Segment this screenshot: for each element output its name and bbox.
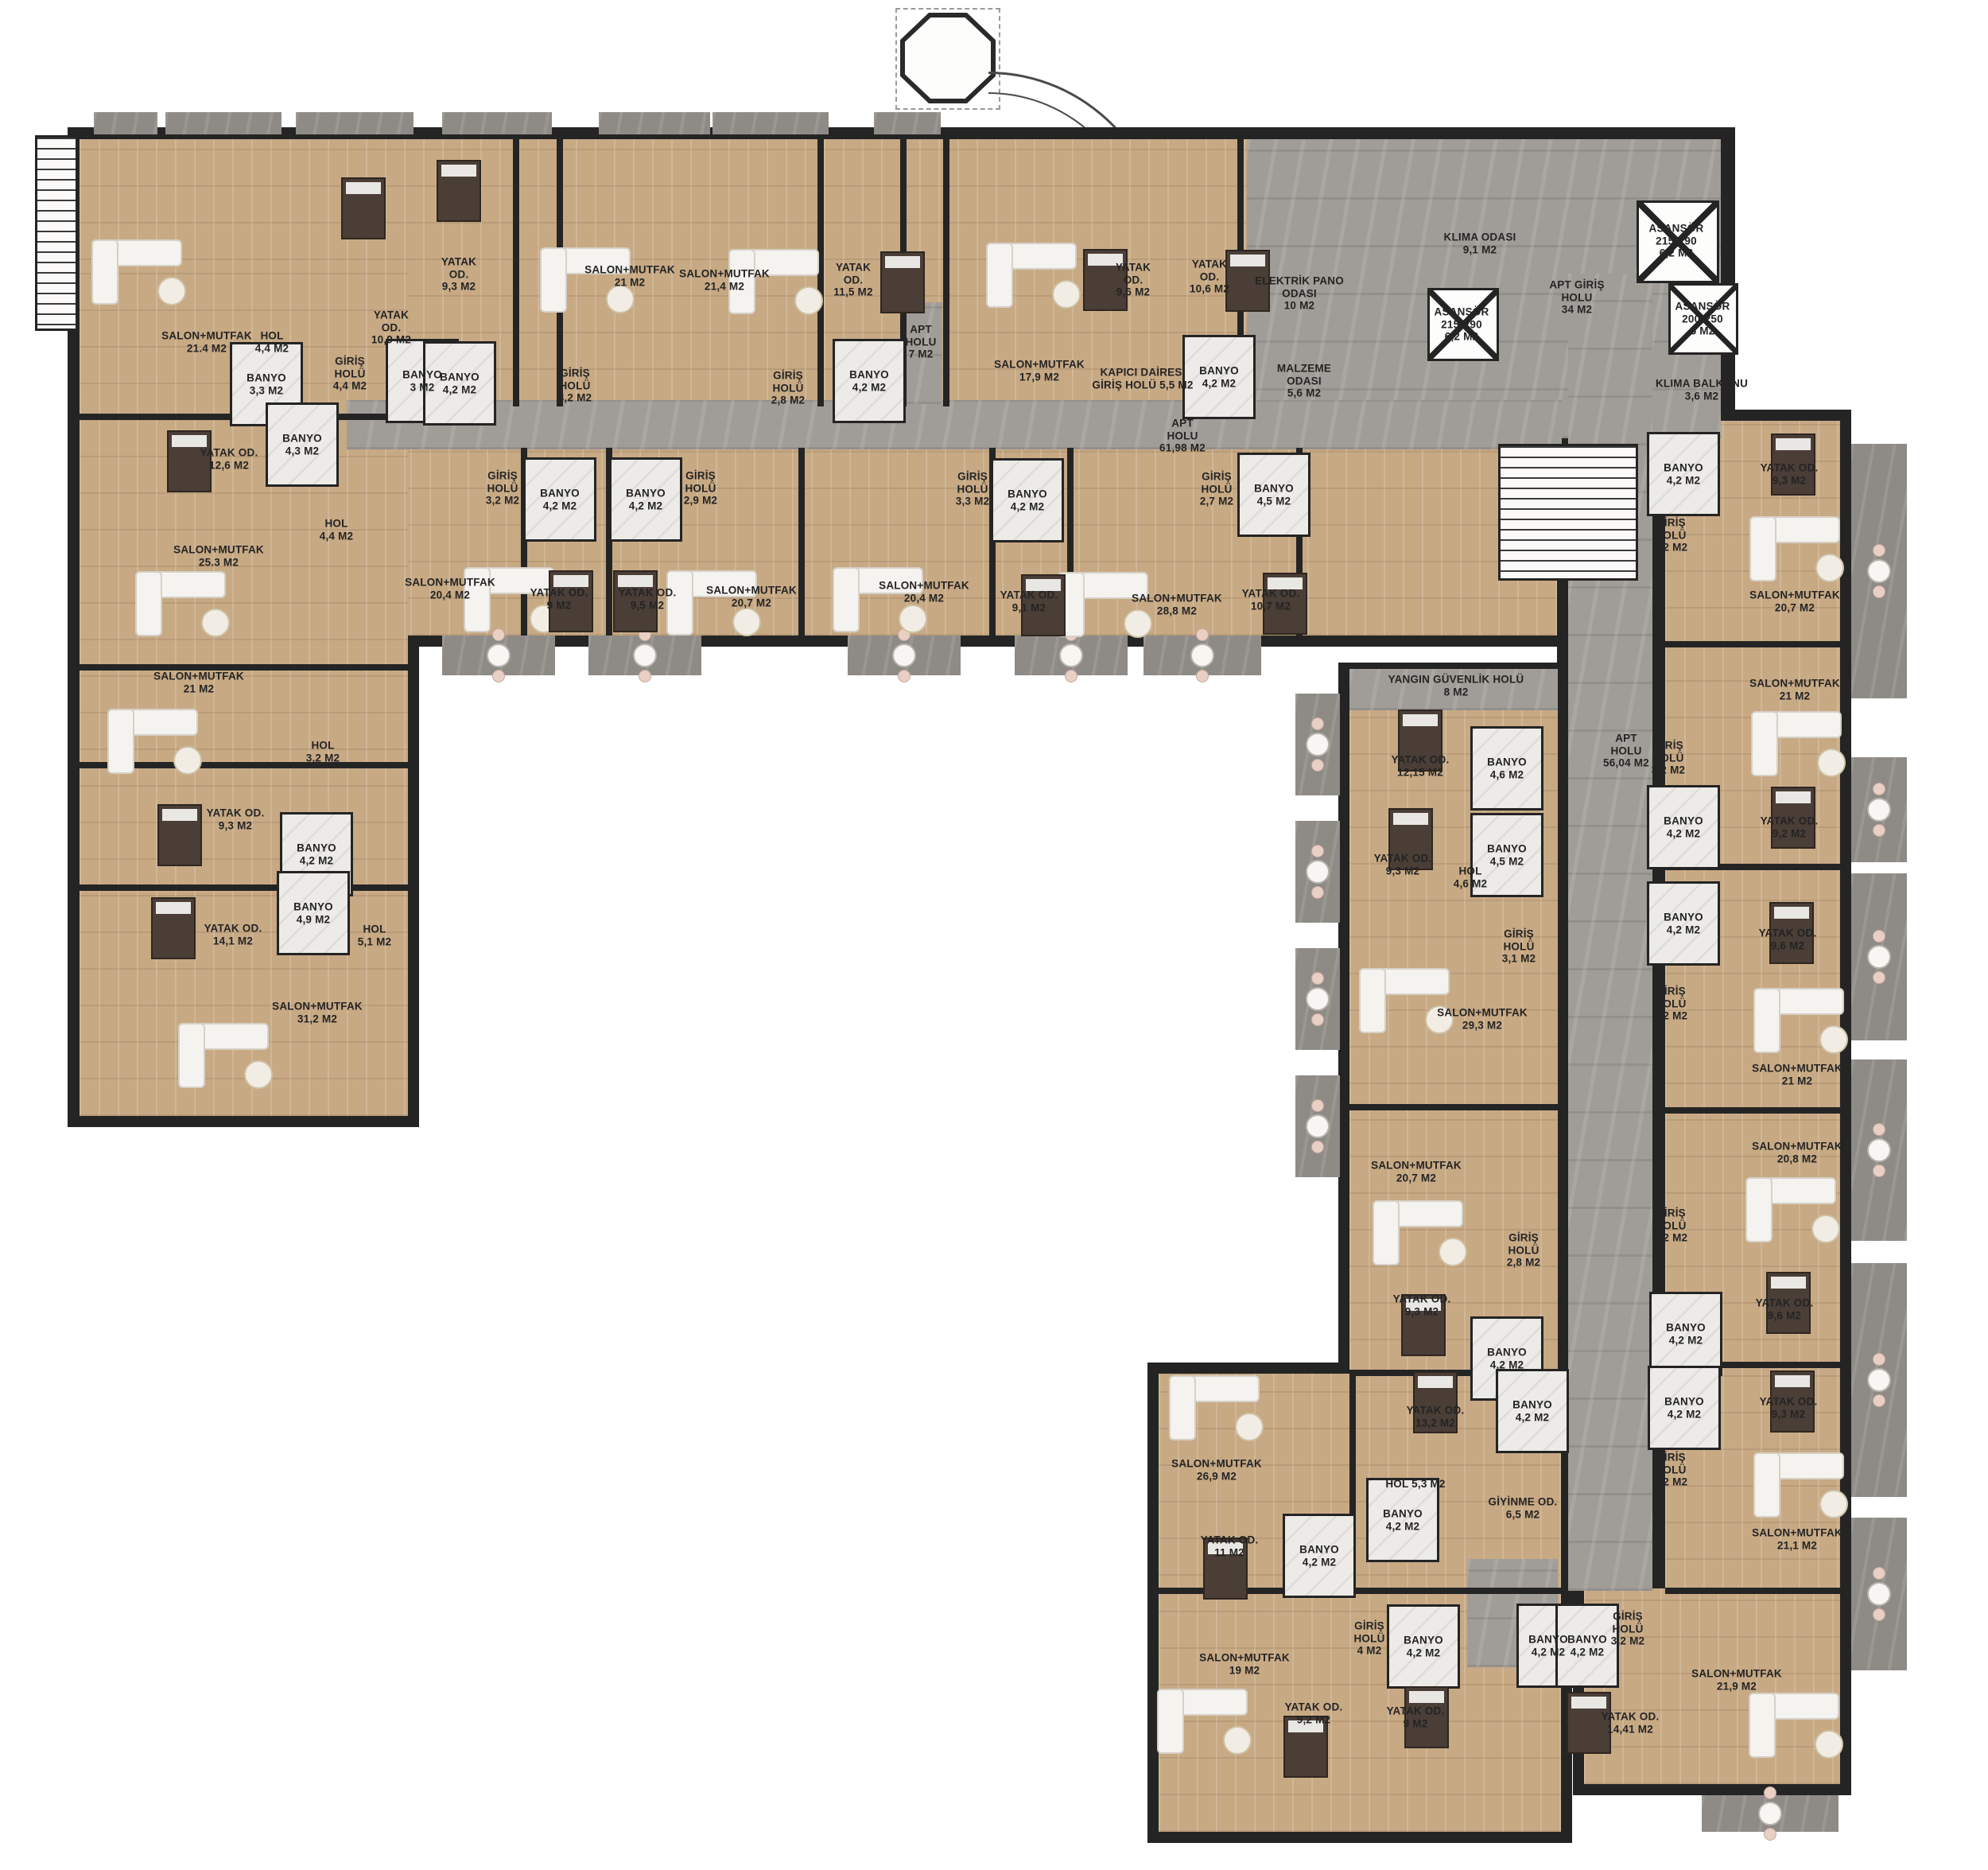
balcony-chair [1311, 717, 1324, 730]
room-label: GİRİŞ HOLÜ 3,2 M2 [1652, 740, 1685, 777]
balcony-chair [1873, 1567, 1885, 1580]
balcony-chair [1873, 930, 1885, 943]
coffee-table [899, 605, 927, 633]
room-label: GİRİŞ HOLÜ 3,2 M2 [1611, 1611, 1644, 1648]
room-label: ASANSÖR 215*290 6,2 M2 [1649, 223, 1704, 260]
room-label: GİRİŞ HOLÜ 3,2 M2 [558, 367, 592, 405]
room-label: YATAK OD. 10,9 M2 [371, 309, 411, 347]
room-label: YATAK OD. 9,2 M2 [1285, 1701, 1343, 1725]
room-label: KLIMA BALKONU 3,6 M2 [1656, 377, 1748, 402]
balcony-table [1867, 1368, 1891, 1392]
coffee-table [606, 285, 635, 313]
room-label: SALON+MUTFAK 31,2 M2 [272, 1000, 363, 1024]
room-label: APT GİRİŞ HOLU 34 M2 [1549, 279, 1604, 317]
room-label: HOL 4,6 M2 [1454, 865, 1487, 889]
room-label: YATAK OD. 9,3 M2 [1760, 1395, 1818, 1420]
balcony-chair [1873, 971, 1885, 984]
wall-segment [513, 139, 519, 406]
room-label: SALON+MUTFAK 29,3 M2 [1437, 1006, 1528, 1031]
room-label: YATAK OD. 9,3 M2 [207, 807, 265, 831]
room-label: BANYO 3 M2 [402, 368, 442, 393]
room-label: BANYO 4,9 M2 [293, 900, 333, 925]
room-label: SALON+MUTFAK 20,4 M2 [405, 576, 495, 601]
room-label: SALON+MUTFAK 21 M2 [584, 263, 675, 288]
coffee-table [244, 1060, 273, 1089]
coffee-table [1235, 1413, 1264, 1441]
room-label: YATAK OD. 11 M2 [1201, 1534, 1259, 1558]
room-label: MALZEME ODASI 5,6 M2 [1277, 363, 1331, 400]
balcony-chair [1873, 1123, 1885, 1136]
room-label: YATAK OD. 9 M2 [530, 586, 588, 611]
room-label: BANYO 4,2 M2 [540, 487, 580, 511]
room-label: HOL 4,4 M2 [255, 329, 289, 354]
room-label: BANYO 4,2 M2 [1008, 488, 1047, 512]
room-label: GİRİŞ HOLÜ 3,2 M2 [486, 470, 519, 507]
balcony-chair [492, 628, 505, 641]
room-label: SALON+MUTFAK 21,4 M2 [679, 267, 770, 292]
room-label: APT HOLU 7 M2 [905, 324, 936, 361]
balcony-table [1867, 559, 1891, 583]
balcony-chair [1873, 783, 1885, 795]
coffee-table [1052, 280, 1081, 309]
room-label: SALON+MUTFAK 28,8 M2 [1132, 592, 1222, 616]
balcony-chair [1311, 972, 1324, 985]
staircase [35, 135, 78, 331]
room-label: GİRİŞ HOLÜ 2,8 M2 [1507, 1232, 1540, 1269]
bed-furniture [151, 897, 196, 959]
balcony-table [1190, 643, 1214, 667]
room-label: BANYO 4,2 M2 [1664, 814, 1703, 839]
room-label: SALON+MUTFAK 19 M2 [1199, 1651, 1290, 1676]
room-label: BANYO 4,2 M2 [1666, 1321, 1706, 1346]
room-label: BANYO 4,2 M2 [1664, 911, 1703, 935]
room-label: BANYO 4,5 M2 [1254, 482, 1294, 507]
room-label: BANYO 4,6 M2 [1487, 756, 1527, 780]
room-label: SALON+MUTFAK 20,4 M2 [879, 579, 969, 604]
room-label: BANYO 4,2 M2 [1664, 461, 1703, 486]
room-label: HOL 3,2 M2 [306, 739, 340, 764]
room-label: ELEKTRİK PANO ODASI 10 M2 [1255, 275, 1344, 313]
room-label: HOL 4,4 M2 [320, 517, 353, 542]
room-label: YATAK OD. 9,6 M2 [1759, 927, 1817, 951]
balcony-table [1059, 643, 1083, 667]
balcony-chair [1311, 1099, 1324, 1112]
balcony [165, 112, 282, 134]
balcony [94, 112, 157, 134]
balcony-chair [492, 670, 505, 682]
room-label: YATAK OD. 9,5 M2 [619, 586, 677, 611]
room-label: ASANSÖR 215*290 6,2 M2 [1435, 306, 1489, 344]
room-label: GİRİŞ HOLÜ 3,2 M2 [1654, 517, 1687, 554]
room-label: SALON+MUTFAK 20,8 M2 [1752, 1140, 1842, 1164]
balcony-chair [1311, 845, 1324, 857]
wall-segment [80, 884, 408, 891]
room-label: SALON+MUTFAK 17,9 M2 [994, 358, 1085, 383]
room-label: YATAK OD. 9,6 M2 [1116, 262, 1151, 299]
room-label: BANYO 4,2 M2 [440, 371, 480, 395]
balcony-chair [1311, 886, 1324, 899]
coffee-table [1815, 554, 1844, 582]
room-label: YATAK OD. 9,3 M2 [1761, 461, 1819, 486]
balcony-chair [1065, 670, 1077, 682]
room-label: APT HOLU 56,04 M2 [1603, 733, 1649, 770]
balcony-table [1306, 1114, 1330, 1138]
room-label: GİRİŞ HOLÜ 3,1 M2 [1502, 928, 1536, 966]
balcony-chair [1873, 585, 1885, 598]
wall-segment [1665, 1107, 1840, 1114]
balcony-table [1867, 1582, 1891, 1606]
room-label: HOL 5,3 M2 [1385, 1478, 1445, 1491]
room-label: SALON+MUTFAK 21,9 M2 [1691, 1667, 1782, 1692]
room-label: BANYO 4,2 M2 [1512, 1398, 1552, 1423]
room-label: KAPICI DAİRESİ GİRİŞ HOLÜ 5,5 M2 [1092, 366, 1193, 391]
balcony-table [1306, 987, 1330, 1011]
room-label: YATAK OD. 10,6 M2 [1190, 259, 1229, 296]
room-label: GİRİŞ HOLÜ 2,7 M2 [1200, 471, 1233, 508]
room-label: YATAK OD. 12,6 M2 [200, 446, 258, 471]
room-label: SALON+MUTFAK 26,9 M2 [1171, 1457, 1262, 1482]
room-label: KLIMA ODASI 9,1 M2 [1444, 231, 1516, 255]
wall-segment [943, 139, 949, 406]
room-label: YATAK OD. 9,3 M2 [1393, 1293, 1451, 1317]
room-label: GİRİŞ HOLÜ 4 M2 [1353, 1620, 1384, 1658]
balcony-chair [1311, 1013, 1324, 1026]
balcony-chair [1873, 1394, 1885, 1407]
balcony-chair [1196, 670, 1209, 682]
room-label: BANYO 4,2 M2 [1664, 1395, 1704, 1420]
room-label: BANYO 3,3 M2 [247, 371, 286, 396]
room-label: GİRİŞ HOLÜ 3,3 M2 [956, 471, 989, 508]
room-label: BANYO 4,3 M2 [282, 432, 322, 457]
bed-furniture [880, 251, 925, 313]
balcony-chair [1873, 1608, 1885, 1621]
room-label: YANGIN GÜVENLİK HOLÜ 8 M2 [1388, 673, 1524, 698]
coffee-table [1223, 1726, 1252, 1755]
balcony-table [1306, 733, 1330, 756]
balcony-table [633, 643, 657, 667]
room-label: APT HOLU 61,98 M2 [1159, 418, 1206, 455]
room-label: GİRİŞ HOLÜ 2,8 M2 [771, 370, 805, 407]
room-label: GİRİŞ HOLÜ 2,9 M2 [684, 470, 717, 507]
balcony-table [1867, 1138, 1891, 1162]
room-label: BANYO 4,5 M2 [1487, 842, 1527, 867]
floor-plan: SALON+MUTFAK 21.4 M2HOL 4,4 M2YATAK OD. … [0, 0, 1988, 1870]
room-label: SALON+MUTFAK 21 M2 [1749, 677, 1840, 702]
balcony [599, 112, 710, 134]
balcony [442, 112, 552, 134]
balcony-chair [1873, 1353, 1885, 1366]
coffee-table [173, 746, 202, 775]
bed-furniture [341, 177, 386, 239]
wall-segment [1349, 1104, 1558, 1110]
coffee-table [794, 286, 823, 315]
balcony [712, 112, 829, 134]
wall-segment [1665, 641, 1840, 647]
room-label: YATAK OD. 9,6 M2 [1756, 1297, 1814, 1321]
balcony-chair [639, 670, 651, 682]
room-label: GİRİŞ HOLÜ 3,2 M2 [1654, 986, 1687, 1023]
balcony [296, 112, 414, 134]
room-label: BANYO 4,2 M2 [297, 842, 336, 866]
room-label: SALON+MUTFAK 20,7 M2 [1371, 1159, 1462, 1184]
room-label: GİRİŞ HOLÜ 3,2 M2 [1654, 1452, 1687, 1489]
balcony-chair [1764, 1786, 1776, 1799]
room-label: BANYO 4,2 M2 [849, 368, 889, 393]
balcony-chair [1873, 1164, 1885, 1177]
room-label: YATAK OD. 13,2 M2 [1407, 1404, 1465, 1429]
balcony-chair [1764, 1828, 1776, 1841]
room-label: BANYO 4,2 M2 [626, 487, 666, 511]
coffee-table [1817, 748, 1846, 777]
balcony-chair [1311, 759, 1324, 772]
room-label: SALON+MUTFAK 21.4 M2 [161, 329, 252, 354]
coffee-table [1811, 1215, 1840, 1243]
room-label: BANYO 4,2 M2 [1299, 1543, 1339, 1568]
wall-segment [798, 448, 805, 636]
room-label: BANYO 4,2 M2 [1567, 1633, 1607, 1658]
balcony-table [1306, 860, 1330, 884]
room-label: YATAK OD. 9,3 M2 [1374, 852, 1432, 877]
balcony-table [1867, 798, 1891, 822]
room-label: BANYO 4,2 M2 [1199, 364, 1239, 389]
room-label: HOL 5,1 M2 [358, 923, 391, 947]
room-label: GİRİŞ HOLÜ 4,4 M2 [333, 356, 367, 393]
room-label: YATAK OD. 9,2 M2 [1761, 814, 1819, 839]
balcony-table [1867, 945, 1891, 969]
balcony-chair [1196, 628, 1209, 641]
coffee-table [1819, 1490, 1848, 1518]
bed-furniture [157, 804, 202, 866]
room-label: GİRİŞ HOLÜ 3,2 M2 [1654, 1207, 1687, 1245]
room-label: YATAK OD. 9,3 M2 [441, 256, 476, 294]
room-label: YATAK OD. 14,1 M2 [204, 922, 262, 947]
room-label: GİYİNME OD. 6,5 M2 [1489, 1495, 1558, 1520]
room-label: YATAK OD. 10,7 M2 [1242, 587, 1300, 612]
room-label: SALON+MUTFAK 21,1 M2 [1752, 1526, 1842, 1551]
room-label: SALON+MUTFAK 25.3 M2 [173, 543, 264, 568]
coffee-table [1815, 1730, 1843, 1759]
corridor-floor [347, 400, 1562, 449]
room-label: SALON+MUTFAK 21 M2 [1752, 1062, 1842, 1087]
coffee-table [157, 277, 186, 305]
balcony-chair [1873, 824, 1885, 837]
coffee-table [732, 608, 761, 636]
balcony-table [1758, 1802, 1782, 1825]
balcony [874, 112, 941, 134]
room-label: SALON+MUTFAK 20,7 M2 [706, 584, 797, 608]
balcony-table [892, 643, 916, 667]
coffee-table [201, 608, 230, 637]
wall-segment [1665, 1588, 1840, 1594]
room-label: BANYO 4,2 M2 [1383, 1507, 1423, 1532]
staircase [1498, 444, 1638, 581]
balcony-table [487, 643, 511, 667]
room-label: YATAK OD. 12,15 M2 [1392, 753, 1450, 778]
balcony-chair [898, 670, 911, 682]
room-label: SALON+MUTFAK 21 M2 [153, 670, 244, 694]
balcony-chair [1311, 1141, 1324, 1153]
room-label: YATAK OD. 11,5 M2 [833, 262, 872, 299]
room-label: BANYO 4,2 M2 [1528, 1633, 1568, 1658]
room-label: BANYO 4,2 M2 [1487, 1346, 1527, 1370]
room-label: ASANSÖR 200*250 5 M2 [1675, 301, 1730, 338]
room-label: YATAK OD. 14,41 M2 [1602, 1710, 1660, 1735]
bed-furniture [437, 160, 481, 222]
room-label: SALON+MUTFAK 20,7 M2 [1749, 589, 1840, 613]
room-label: YATAK OD. 9 M2 [1387, 1705, 1445, 1729]
coffee-table [1819, 1025, 1848, 1054]
coffee-table [1439, 1238, 1467, 1266]
room-label: YATAK OD. 9,1 M2 [1000, 589, 1058, 613]
room-label: BANYO 4,2 M2 [1404, 1634, 1443, 1658]
balcony-chair [1873, 544, 1885, 557]
